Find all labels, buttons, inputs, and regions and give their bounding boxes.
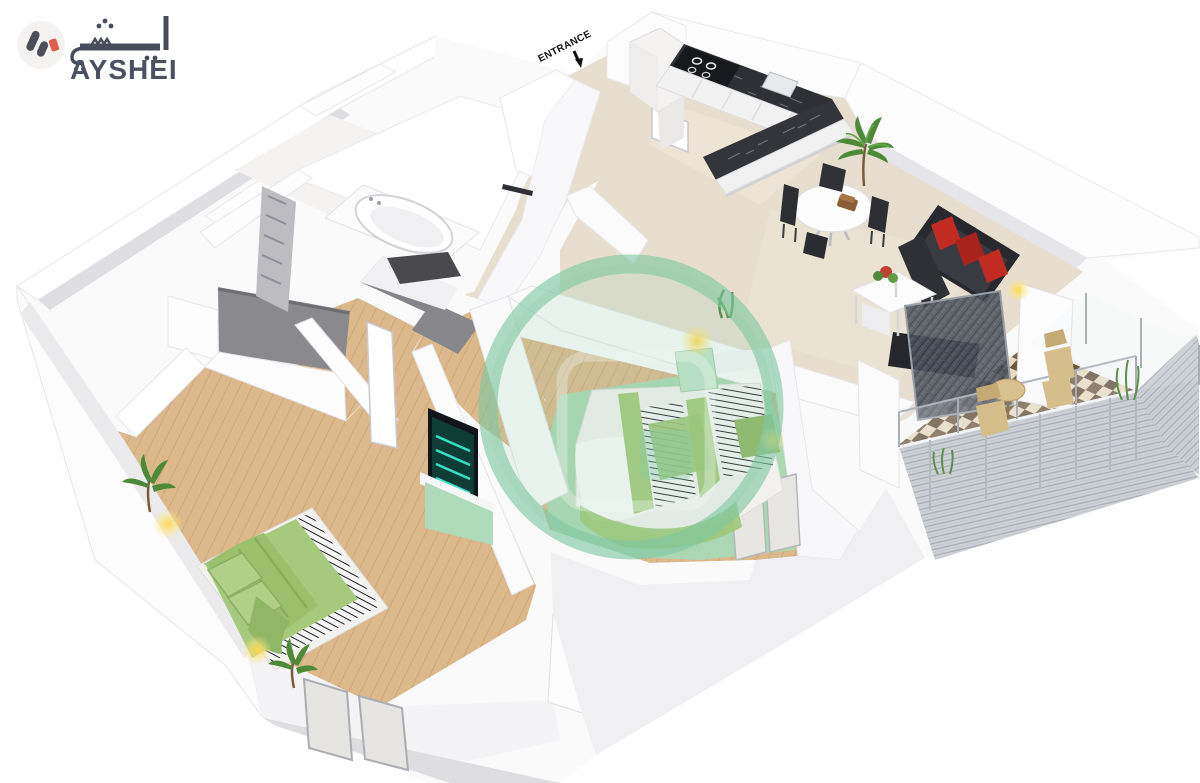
svg-text:AYSHEI: AYSHEI <box>70 54 178 85</box>
